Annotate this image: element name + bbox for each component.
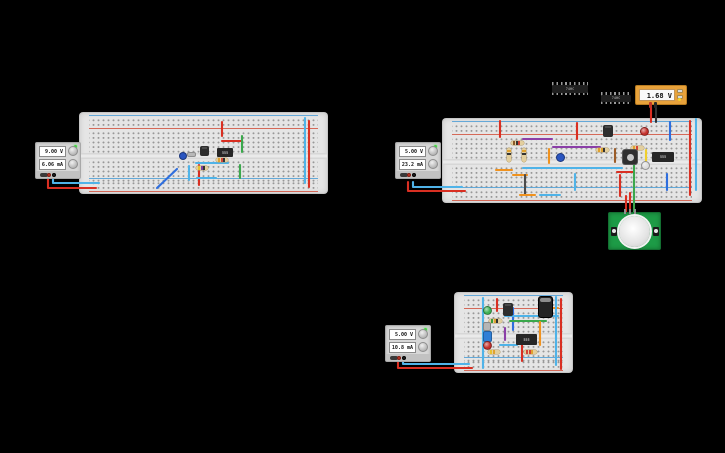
negative-terminal[interactable]	[402, 356, 406, 360]
pir-terminal-right[interactable]	[653, 227, 659, 236]
multimeter-controls	[675, 89, 684, 101]
current-knob[interactable]	[418, 342, 428, 352]
led-white[interactable]	[641, 161, 650, 170]
positive-terminal[interactable]	[407, 173, 411, 177]
voltage-display: 9.00 V	[39, 146, 66, 157]
negative-probe[interactable]	[654, 102, 657, 108]
pir-dome	[619, 216, 650, 247]
resistor[interactable]	[489, 319, 502, 323]
voltage-display: 5.00 V	[389, 329, 416, 340]
negative-terminal[interactable]	[52, 173, 56, 177]
voltage-knob[interactable]	[428, 146, 438, 156]
resistor-band	[223, 158, 225, 162]
pir-pin[interactable]	[629, 209, 631, 214]
positive-probe[interactable]	[649, 102, 652, 108]
pir-sensor[interactable]	[608, 212, 661, 250]
circuit-canvas: 555555555 9.00 V 6.06 mA 5.00 V 23.2 mA …	[0, 0, 725, 453]
pir-pin[interactable]	[624, 209, 626, 214]
current-display: 23.2 mA	[399, 159, 426, 170]
resistor[interactable]	[507, 148, 511, 162]
resistor[interactable]	[216, 158, 228, 162]
ic-label: 555	[523, 338, 529, 342]
mode-indicator	[678, 98, 681, 101]
current-knob[interactable]	[68, 159, 78, 169]
voltage-knob[interactable]	[418, 329, 428, 339]
dip-ic[interactable]: 74HC	[601, 92, 631, 104]
mode-button[interactable]	[677, 89, 683, 93]
resistor-band	[522, 153, 526, 155]
transistor[interactable]	[603, 125, 613, 137]
positive-terminal[interactable]	[47, 173, 51, 177]
resistor[interactable]	[596, 148, 609, 152]
positive-terminal[interactable]	[397, 356, 401, 360]
resistor[interactable]	[511, 141, 524, 145]
led-green[interactable]	[483, 306, 492, 315]
resistor-band	[493, 350, 495, 354]
resistor-band	[531, 350, 533, 354]
resistor[interactable]	[524, 350, 537, 354]
timer-ic[interactable]: 555	[516, 334, 537, 345]
power-supply[interactable]: 5.00 V 23.2 mA	[395, 142, 441, 179]
power-supply[interactable]: 5.00 V 10.8 mA	[385, 325, 431, 362]
capacitor-top	[540, 298, 551, 302]
capacitor[interactable]	[483, 322, 491, 331]
transistor[interactable]	[200, 146, 209, 156]
resistor-band	[603, 148, 605, 152]
dip-ic[interactable]: 74HC	[552, 82, 588, 95]
resistor-band	[203, 166, 205, 170]
resistor[interactable]	[522, 148, 526, 162]
negative-terminal[interactable]	[412, 173, 416, 177]
led-red[interactable]	[640, 127, 649, 136]
capacitor-disc[interactable]	[556, 153, 565, 162]
resistor-band	[507, 153, 511, 155]
multimeter[interactable]: 1.68 V	[635, 85, 687, 105]
crystal[interactable]	[187, 152, 196, 157]
current-display: 10.8 mA	[389, 342, 416, 353]
capacitor-electrolytic[interactable]	[538, 296, 553, 318]
pir-terminal-left[interactable]	[611, 227, 617, 236]
current-knob[interactable]	[428, 159, 438, 169]
resistor[interactable]	[488, 350, 500, 354]
timer-ic[interactable]: 555	[652, 152, 674, 162]
resistor-band	[496, 319, 498, 323]
capacitor-disc[interactable]	[179, 152, 187, 160]
transistor[interactable]	[503, 303, 513, 316]
ic-label: 555	[660, 155, 666, 159]
voltage-display: 5.00 V	[399, 146, 426, 157]
resistor[interactable]	[196, 166, 208, 170]
timer-ic[interactable]: 555	[217, 148, 233, 157]
pir-pin[interactable]	[634, 209, 636, 214]
dip-ic-label: 74HC	[552, 85, 588, 93]
led-red[interactable]	[483, 341, 492, 350]
resistor-band	[518, 141, 520, 145]
current-display: 6.06 mA	[39, 159, 66, 170]
voltage-knob[interactable]	[68, 146, 78, 156]
dip-ic-label: 74HC	[601, 95, 631, 102]
pushbutton[interactable]	[623, 150, 637, 164]
multimeter-display: 1.68 V	[639, 89, 675, 101]
ic-label: 555	[222, 151, 228, 155]
power-supply[interactable]: 9.00 V 6.06 mA	[35, 142, 81, 179]
